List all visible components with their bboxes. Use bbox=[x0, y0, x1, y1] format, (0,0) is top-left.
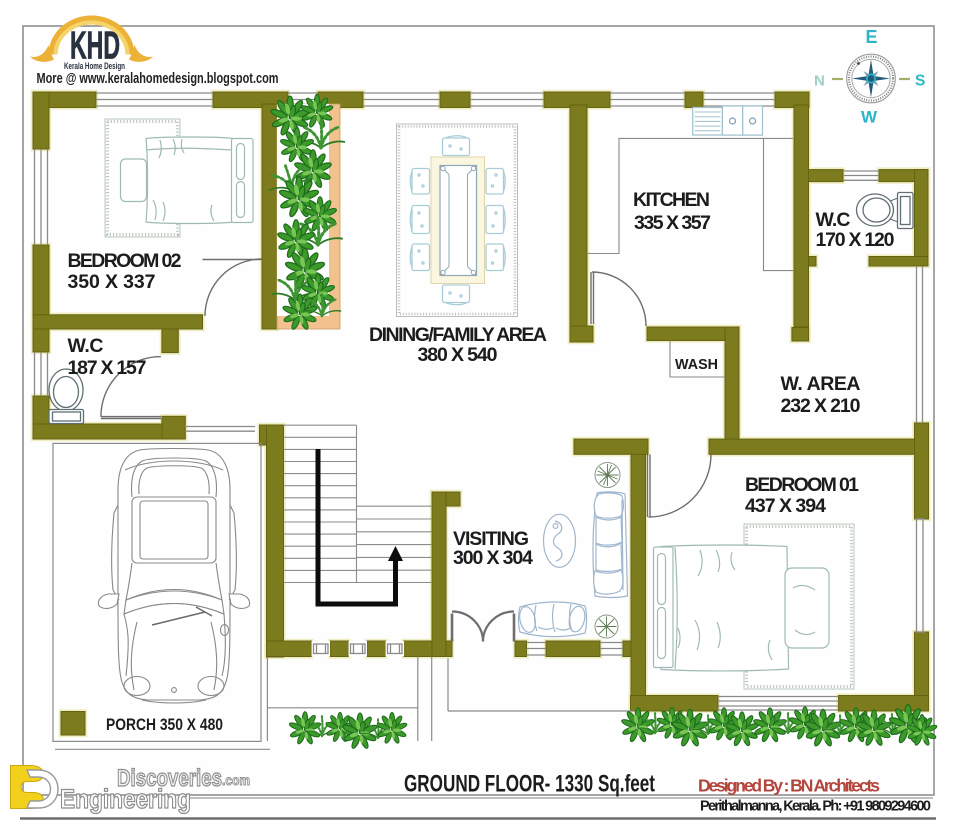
svg-text:W.C: W.C bbox=[68, 335, 104, 357]
svg-text:Designed By : BN Architects: Designed By : BN Architects bbox=[698, 776, 880, 796]
svg-text:Engineering: Engineering bbox=[60, 784, 191, 814]
svg-text:S: S bbox=[915, 73, 925, 90]
svg-text:W. AREA: W. AREA bbox=[781, 373, 861, 395]
svg-text:335 X 357: 335 X 357 bbox=[634, 212, 711, 234]
svg-text:437 X 394: 437 X 394 bbox=[745, 495, 826, 517]
svg-text:232 X 210: 232 X 210 bbox=[781, 395, 861, 417]
svg-text:PORCH 350 X 480: PORCH 350 X 480 bbox=[106, 715, 223, 734]
svg-text:187 X 157: 187 X 157 bbox=[68, 357, 147, 379]
svg-text:E: E bbox=[866, 27, 878, 47]
svg-text:380 X 540: 380 X 540 bbox=[418, 344, 498, 366]
svg-text:KITCHEN: KITCHEN bbox=[633, 189, 710, 211]
svg-text:W: W bbox=[861, 108, 878, 127]
svg-text:Perithalmanna, Kerala. Ph: +91: Perithalmanna, Kerala. Ph: +91 980929460… bbox=[700, 799, 931, 815]
svg-text:N: N bbox=[814, 73, 825, 90]
svg-text:350 X 337: 350 X 337 bbox=[68, 271, 156, 293]
svg-text:W.C: W.C bbox=[816, 209, 851, 231]
svg-text:BEDROOM 01: BEDROOM 01 bbox=[745, 474, 859, 496]
svg-text:More @ www.keralahomedesign.bl: More @ www.keralahomedesign.blogspot.com bbox=[37, 70, 279, 87]
svg-text:WASH: WASH bbox=[675, 357, 718, 373]
svg-text:170 X 120: 170 X 120 bbox=[816, 229, 895, 251]
svg-text:300 X 304: 300 X 304 bbox=[453, 547, 533, 569]
svg-text:BEDROOM 02: BEDROOM 02 bbox=[68, 250, 182, 272]
svg-text:.com: .com bbox=[222, 773, 250, 788]
svg-text:DINING/FAMILY AREA: DINING/FAMILY AREA bbox=[369, 324, 547, 346]
svg-text:GROUND FLOOR- 1330 Sq.feet: GROUND FLOOR- 1330 Sq.feet bbox=[404, 771, 655, 798]
